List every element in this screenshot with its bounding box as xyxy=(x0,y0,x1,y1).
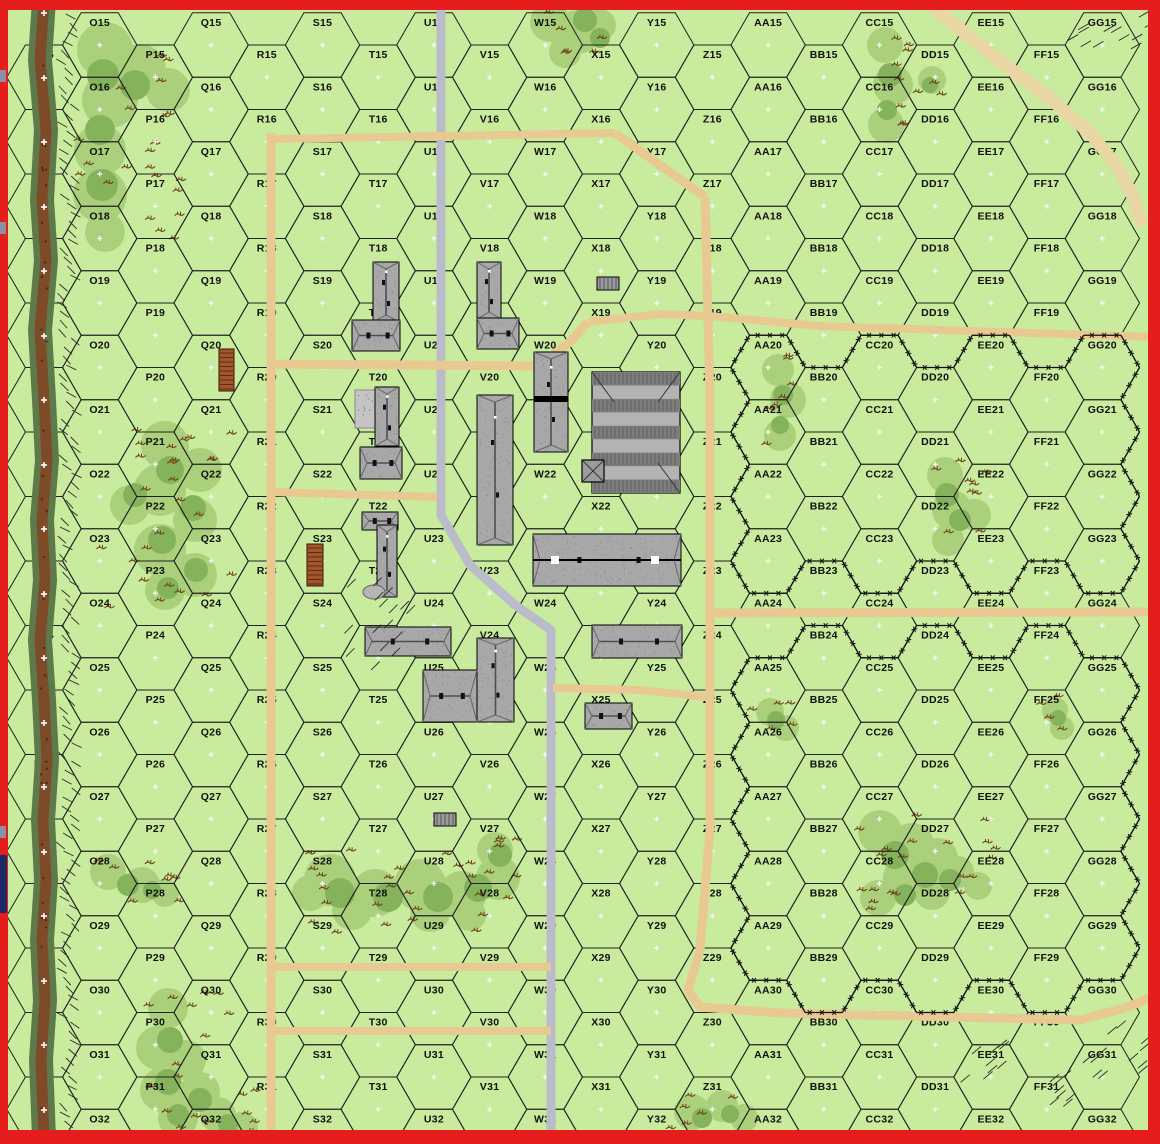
hex-label: Y26 xyxy=(647,726,667,738)
hex-label: AA27 xyxy=(754,791,782,803)
hex-label: GG18 xyxy=(1088,210,1117,222)
hex-label: O15 xyxy=(89,17,110,29)
hex-label: Z29 xyxy=(703,952,722,964)
hex-label: U32 xyxy=(424,1113,444,1125)
hex-label: Q27 xyxy=(201,791,222,803)
hex-label: EE20 xyxy=(977,339,1004,351)
building-T21[interactable] xyxy=(375,387,399,446)
hex-label: S24 xyxy=(313,597,333,609)
hex-label: T22 xyxy=(369,501,388,513)
hex-label: T30 xyxy=(369,1017,388,1029)
rowhouse-S23[interactable] xyxy=(307,544,323,586)
hex-label: X16 xyxy=(591,114,611,126)
hex-label: O22 xyxy=(89,468,110,480)
hex-label: CC24 xyxy=(865,597,893,609)
hex-label: O31 xyxy=(89,1049,110,1061)
hex-label: Y29 xyxy=(647,920,667,932)
hex-label: W22 xyxy=(534,468,557,480)
hex-label: DD31 xyxy=(921,1081,949,1093)
hex-label: CC17 xyxy=(865,146,893,158)
building-S20[interactable] xyxy=(352,320,400,351)
hex-label: U23 xyxy=(424,533,444,545)
hex-label: EE21 xyxy=(977,404,1004,416)
hex-label: P15 xyxy=(146,49,166,61)
oval-T23[interactable] xyxy=(363,585,385,599)
hex-label: P27 xyxy=(146,823,166,835)
factory-X20[interactable] xyxy=(592,372,680,493)
hex-label: S29 xyxy=(313,920,333,932)
hex-label: AA32 xyxy=(754,1113,782,1125)
hex-label: V17 xyxy=(480,178,500,190)
row24-road[interactable] xyxy=(708,612,1150,613)
hex-label: S23 xyxy=(313,533,333,545)
hex-label: AA22 xyxy=(754,468,782,480)
hex-label: AA20 xyxy=(754,339,782,351)
hex-label: O21 xyxy=(89,404,110,416)
hex-label: W19 xyxy=(534,275,557,287)
hex-label: Y15 xyxy=(647,17,667,29)
hex-label: FF31 xyxy=(1034,1081,1060,1093)
hex-label: O24 xyxy=(89,597,110,609)
hex-label: T15 xyxy=(369,49,388,61)
hex-label: V28 xyxy=(480,888,500,900)
hex-label: GG32 xyxy=(1088,1113,1117,1125)
hex-label: Y32 xyxy=(647,1113,667,1125)
hex-label: CC16 xyxy=(865,81,893,93)
hex-label: U28 xyxy=(424,855,444,867)
hex-label: P22 xyxy=(146,501,166,513)
building-U25[interactable] xyxy=(423,670,477,722)
hex-label: DD29 xyxy=(921,952,949,964)
hex-label: V15 xyxy=(480,49,500,61)
hex-label: Y28 xyxy=(647,855,667,867)
hex-label: Q31 xyxy=(201,1049,222,1061)
hex-label: V18 xyxy=(480,243,500,255)
hex-label: EE25 xyxy=(977,662,1004,674)
hex-label: BB20 xyxy=(810,372,838,384)
hex-label: X31 xyxy=(591,1081,611,1093)
building-V20[interactable] xyxy=(477,395,513,545)
hex-label: Q32 xyxy=(201,1113,222,1125)
hex-label: GG20 xyxy=(1088,339,1117,351)
hex-label: DD17 xyxy=(921,178,949,190)
hex-label: S17 xyxy=(313,146,333,158)
hex-label: DD25 xyxy=(921,694,949,706)
hex-label: R16 xyxy=(257,114,277,126)
hex-label: EE28 xyxy=(977,855,1004,867)
hex-label: T29 xyxy=(369,952,388,964)
hex-label: AA17 xyxy=(754,146,782,158)
hex-label: P17 xyxy=(146,178,166,190)
hex-label: GG28 xyxy=(1088,855,1117,867)
hex-label: Z31 xyxy=(703,1081,722,1093)
hex-label: P16 xyxy=(146,114,166,126)
hex-label: AA24 xyxy=(754,597,782,609)
hex-label: BB31 xyxy=(810,1081,838,1093)
hex-label: T28 xyxy=(369,888,388,900)
hex-label: Q19 xyxy=(201,275,222,287)
hex-label: X27 xyxy=(591,823,611,835)
hex-label: CC19 xyxy=(865,275,893,287)
hex-label: S22 xyxy=(313,468,333,480)
hex-label: FF21 xyxy=(1034,436,1060,448)
hex-label: W15 xyxy=(534,17,557,29)
hex-label: EE23 xyxy=(977,533,1004,545)
hex-label: O16 xyxy=(89,81,110,93)
hex-label: EE27 xyxy=(977,791,1004,803)
pavement-T21[interactable] xyxy=(355,390,375,428)
hex-label: EE29 xyxy=(977,920,1004,932)
hex-label: V31 xyxy=(480,1081,500,1093)
hex-label: AA16 xyxy=(754,81,782,93)
hex-label: P20 xyxy=(146,372,166,384)
hex-label: P23 xyxy=(146,565,166,577)
hex-label: EE24 xyxy=(977,597,1004,609)
hex-label: GG30 xyxy=(1088,984,1117,996)
hex-label: X29 xyxy=(591,952,611,964)
hex-label: X17 xyxy=(591,178,611,190)
building-T24[interactable] xyxy=(365,627,451,656)
hex-label: Z16 xyxy=(703,114,722,126)
hex-label: Y24 xyxy=(647,597,667,609)
hex-label: DD26 xyxy=(921,759,949,771)
hex-label: S28 xyxy=(313,855,333,867)
building-T19[interactable] xyxy=(373,262,399,322)
hex-label: BB17 xyxy=(810,178,838,190)
hex-label: FF15 xyxy=(1034,49,1060,61)
hex-label: Q21 xyxy=(201,404,222,416)
building-V19[interactable] xyxy=(477,262,501,319)
hex-label: X22 xyxy=(591,501,611,513)
hex-label: FF16 xyxy=(1034,114,1060,126)
hex-label: Z30 xyxy=(703,1017,722,1029)
hex-label: T16 xyxy=(369,114,388,126)
hex-label: P30 xyxy=(146,1017,166,1029)
map-svg: N15N16N17N18N19N20N21N22N23N24N25N26N27N… xyxy=(0,0,1160,1144)
hex-label: P21 xyxy=(146,436,166,448)
factory-tower[interactable] xyxy=(582,460,604,482)
hex-label: Q15 xyxy=(201,17,222,29)
map-layers: N15N16N17N18N19N20N21N22N23N24N25N26N27N… xyxy=(0,0,1160,1144)
hex-label: FF18 xyxy=(1034,243,1060,255)
hex-label: AA29 xyxy=(754,920,782,932)
hex-label: P24 xyxy=(146,630,166,642)
hex-label: O25 xyxy=(89,662,110,674)
hex-label: P18 xyxy=(146,243,166,255)
hex-label: Q20 xyxy=(201,339,222,351)
hex-label: CC25 xyxy=(865,662,893,674)
hex-label: EE19 xyxy=(977,275,1004,287)
hex-label: BB15 xyxy=(810,49,838,61)
hex-label: O23 xyxy=(89,533,110,545)
hex-label: W17 xyxy=(534,146,557,158)
hex-label: GG19 xyxy=(1088,275,1117,287)
shed-U27[interactable] xyxy=(434,813,456,826)
hex-label: S21 xyxy=(313,404,333,416)
hex-label: Q24 xyxy=(201,597,222,609)
hex-label: V29 xyxy=(480,952,500,964)
hex-label: CC30 xyxy=(865,984,893,996)
hex-label: FF23 xyxy=(1034,565,1060,577)
hex-label: O27 xyxy=(89,791,110,803)
hex-label: S26 xyxy=(313,726,333,738)
building-W23[interactable] xyxy=(533,534,681,586)
hex-label: Y18 xyxy=(647,210,667,222)
hex-label: W24 xyxy=(534,597,557,609)
hex-label: AA21 xyxy=(754,404,782,416)
hex-label: BB16 xyxy=(810,114,838,126)
hex-label: P19 xyxy=(146,307,166,319)
hex-label: X18 xyxy=(591,243,611,255)
hex-label: P29 xyxy=(146,952,166,964)
hex-label: FF25 xyxy=(1034,694,1060,706)
hex-label: W16 xyxy=(534,81,557,93)
hex-label: FF27 xyxy=(1034,823,1060,835)
hex-label: BB21 xyxy=(810,436,838,448)
hex-label: GG31 xyxy=(1088,1049,1117,1061)
building-X25[interactable] xyxy=(585,703,632,729)
hex-label: EE30 xyxy=(977,984,1004,996)
hex-label: BB25 xyxy=(810,694,838,706)
hex-label: Q25 xyxy=(201,662,222,674)
hex-label: P26 xyxy=(146,759,166,771)
hex-label: Y20 xyxy=(647,339,667,351)
hex-label: EE31 xyxy=(977,1049,1004,1061)
hex-label: FF17 xyxy=(1034,178,1060,190)
building-T22[interactable] xyxy=(360,447,402,479)
hex-label: U26 xyxy=(424,726,444,738)
hex-label: CC27 xyxy=(865,791,893,803)
hex-label: CC32 xyxy=(865,1113,893,1125)
hex-label: GG25 xyxy=(1088,662,1117,674)
building-V24[interactable] xyxy=(477,638,514,722)
hex-label: BB29 xyxy=(810,952,838,964)
hex-label: GG29 xyxy=(1088,920,1117,932)
hex-label: BB18 xyxy=(810,243,838,255)
board-edge-bit xyxy=(0,70,6,82)
hex-label: V16 xyxy=(480,114,500,126)
hex-label: O29 xyxy=(89,920,110,932)
building-V20-annex[interactable] xyxy=(477,318,519,349)
hex-label: O19 xyxy=(89,275,110,287)
hex-label: W20 xyxy=(534,339,557,351)
hex-label: Y31 xyxy=(647,1049,667,1061)
hex-label: U31 xyxy=(424,1049,444,1061)
hex-label: Z17 xyxy=(703,178,722,190)
hex-label: FF28 xyxy=(1034,888,1060,900)
building-W20[interactable] xyxy=(534,352,568,452)
hex-label: V20 xyxy=(480,372,500,384)
hex-label: X26 xyxy=(591,759,611,771)
hex-label: O28 xyxy=(89,855,110,867)
hex-label: T17 xyxy=(369,178,388,190)
hex-label: DD19 xyxy=(921,307,949,319)
hex-label: CC18 xyxy=(865,210,893,222)
hex-label: S27 xyxy=(313,791,333,803)
hex-label: DD28 xyxy=(921,888,949,900)
hex-label: DD16 xyxy=(921,114,949,126)
hex-label: T31 xyxy=(369,1081,388,1093)
hex-label: S18 xyxy=(313,210,333,222)
hex-label: FF20 xyxy=(1034,372,1060,384)
hex-label: CC26 xyxy=(865,726,893,738)
board-edge-bit xyxy=(0,855,7,913)
hex-label: U30 xyxy=(424,984,444,996)
hex-label: DD15 xyxy=(921,49,949,61)
hex-label: O18 xyxy=(89,210,110,222)
hex-label: EE16 xyxy=(977,81,1004,93)
hex-label: Q18 xyxy=(201,210,222,222)
hex-label: BB22 xyxy=(810,501,838,513)
hex-label: Y30 xyxy=(647,984,667,996)
hex-label: BB24 xyxy=(810,630,838,642)
hex-label: S16 xyxy=(313,81,333,93)
hex-label: S19 xyxy=(313,275,333,287)
hex-label: FF19 xyxy=(1034,307,1060,319)
hex-label: BB26 xyxy=(810,759,838,771)
hex-label: X15 xyxy=(591,49,611,61)
hex-label: P25 xyxy=(146,694,166,706)
hex-label: O30 xyxy=(89,984,110,996)
hex-label: AA26 xyxy=(754,726,782,738)
board-edge-bit xyxy=(0,826,6,838)
game-map[interactable]: N15N16N17N18N19N20N21N22N23N24N25N26N27N… xyxy=(0,0,1160,1144)
hex-label: U27 xyxy=(424,791,444,803)
hex-label: CC15 xyxy=(865,17,893,29)
hex-label: O32 xyxy=(89,1113,110,1125)
hex-label: AA31 xyxy=(754,1049,782,1061)
hex-label: EE18 xyxy=(977,210,1004,222)
hex-label: BB27 xyxy=(810,823,838,835)
hex-label: CC29 xyxy=(865,920,893,932)
hex-label: V27 xyxy=(480,823,500,835)
hex-label: DD24 xyxy=(921,630,949,642)
hex-label: AA25 xyxy=(754,662,782,674)
hex-label: Q23 xyxy=(201,533,222,545)
hex-label: BB19 xyxy=(810,307,838,319)
hex-label: Q26 xyxy=(201,726,222,738)
hex-label: Y19 xyxy=(647,275,667,287)
hex-label: T18 xyxy=(369,243,388,255)
hex-label: GG22 xyxy=(1088,468,1117,480)
hex-label: FF29 xyxy=(1034,952,1060,964)
hex-label: AA19 xyxy=(754,275,782,287)
hex-label: FF24 xyxy=(1034,630,1060,642)
hex-label: Q29 xyxy=(201,920,222,932)
hex-label: EE22 xyxy=(977,468,1004,480)
hex-label: GG21 xyxy=(1088,404,1117,416)
building-X24[interactable] xyxy=(592,625,682,658)
hex-label: GG26 xyxy=(1088,726,1117,738)
row23-road[interactable] xyxy=(271,492,437,497)
hex-label: EE26 xyxy=(977,726,1004,738)
hex-label: FF26 xyxy=(1034,759,1060,771)
hex-label: O26 xyxy=(89,726,110,738)
hex-label: W18 xyxy=(534,210,557,222)
shed-X19[interactable] xyxy=(597,277,619,290)
hex-label: DD23 xyxy=(921,565,949,577)
hex-label: S15 xyxy=(313,17,333,29)
hex-label: EE15 xyxy=(977,17,1004,29)
hex-label: CC28 xyxy=(865,855,893,867)
hex-label: Z15 xyxy=(703,49,722,61)
hex-label: CC21 xyxy=(865,404,893,416)
rowhouse-Q20[interactable] xyxy=(219,349,234,391)
hex-label: Q16 xyxy=(201,81,222,93)
hex-label: DD21 xyxy=(921,436,949,448)
hex-label: Q17 xyxy=(201,146,222,158)
hex-label: Y27 xyxy=(647,791,667,803)
hex-label: Q30 xyxy=(201,984,222,996)
hex-label: P31 xyxy=(146,1081,166,1093)
hex-label: T20 xyxy=(369,372,388,384)
hex-label: CC22 xyxy=(865,468,893,480)
hex-label: DD27 xyxy=(921,823,949,835)
hex-label: EE32 xyxy=(977,1113,1004,1125)
hex-label: S32 xyxy=(313,1113,333,1125)
hex-label: AA23 xyxy=(754,533,782,545)
hex-label: AA30 xyxy=(754,984,782,996)
hex-label: AA18 xyxy=(754,210,782,222)
hex-label: S20 xyxy=(313,339,333,351)
hex-label: CC23 xyxy=(865,533,893,545)
hex-label: CC20 xyxy=(865,339,893,351)
hex-label: O17 xyxy=(89,146,110,158)
hex-label: S25 xyxy=(313,662,333,674)
hex-label: Y16 xyxy=(647,81,667,93)
hex-label: EE17 xyxy=(977,146,1004,158)
hex-label: P28 xyxy=(146,888,166,900)
hex-label: DD18 xyxy=(921,243,949,255)
hex-label: T25 xyxy=(369,694,388,706)
hex-label: O20 xyxy=(89,339,110,351)
hex-label: U29 xyxy=(424,920,444,932)
hex-label: R15 xyxy=(257,49,277,61)
hex-label: GG23 xyxy=(1088,533,1117,545)
hex-label: CC31 xyxy=(865,1049,893,1061)
hex-label: DD20 xyxy=(921,372,949,384)
hex-label: FF22 xyxy=(1034,501,1060,513)
hex-label: GG27 xyxy=(1088,791,1117,803)
hex-label: BB23 xyxy=(810,565,838,577)
hex-label: Q22 xyxy=(201,468,222,480)
hex-label: S31 xyxy=(313,1049,333,1061)
hex-label: AA28 xyxy=(754,855,782,867)
hex-label: AA15 xyxy=(754,17,782,29)
hex-label: S30 xyxy=(313,984,333,996)
hex-label: X28 xyxy=(591,888,611,900)
hex-label: GG16 xyxy=(1088,81,1117,93)
hex-label: V26 xyxy=(480,759,500,771)
hex-label: BB28 xyxy=(810,888,838,900)
hex-label: T26 xyxy=(369,759,388,771)
hex-label: Y25 xyxy=(647,662,667,674)
hex-label: V30 xyxy=(480,1017,500,1029)
hex-label: Q28 xyxy=(201,855,222,867)
hex-label: X30 xyxy=(591,1017,611,1029)
hex-label: T27 xyxy=(369,823,388,835)
hex-label: DD22 xyxy=(921,501,949,513)
hex-label: U24 xyxy=(424,597,444,609)
hex-label: GG24 xyxy=(1088,597,1117,609)
board-edge-bit xyxy=(0,222,6,234)
